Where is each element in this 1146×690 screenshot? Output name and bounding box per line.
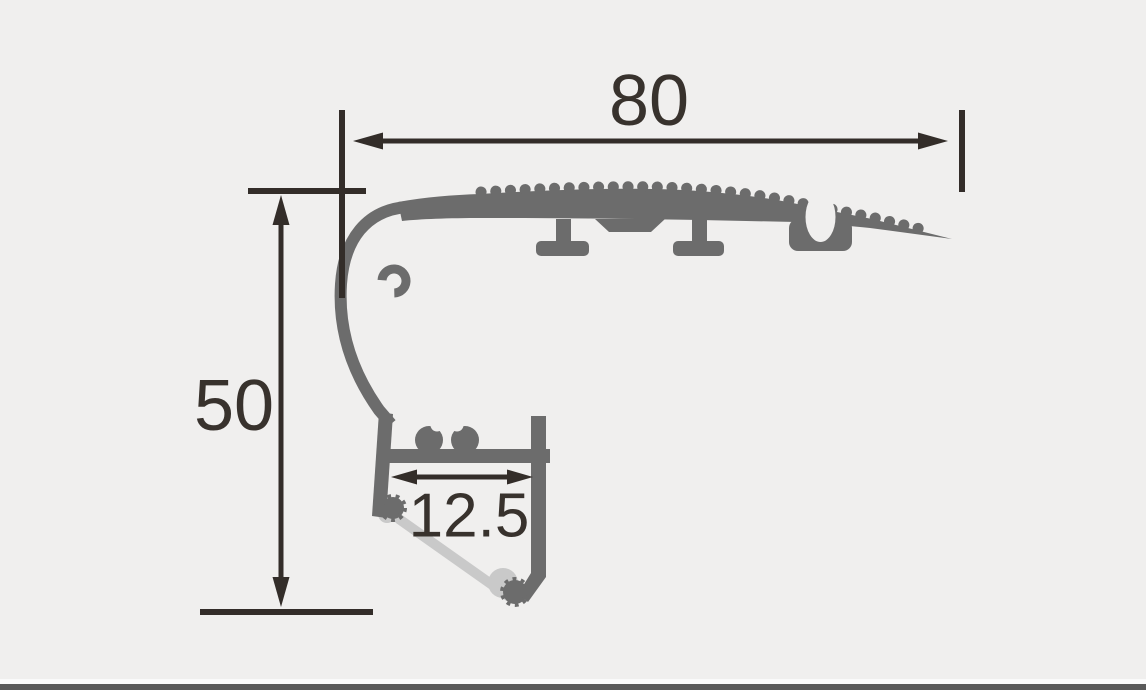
profile-nose-curve	[341, 207, 407, 424]
t-rib-left-foot	[536, 241, 589, 256]
screw-boss-bottom	[503, 580, 527, 604]
dimension-height-tick-bottom	[200, 609, 373, 615]
footer-bar	[0, 684, 1146, 690]
dimension-width-arrow-right	[918, 133, 948, 150]
t-rib-right-foot	[673, 241, 724, 256]
dimension-width-arrow-left	[353, 133, 383, 150]
dimension-height-arrow-down	[273, 577, 290, 607]
t-rib-left-stem	[556, 219, 571, 243]
dimension-height-tick-top	[248, 188, 366, 194]
dimension-height-label: 50	[194, 366, 274, 446]
dimension-width-extension-right	[959, 110, 965, 192]
dimension-height-arrow-up	[273, 195, 290, 225]
t-rib-right-stem	[692, 219, 707, 243]
dimension-width-label: 80	[609, 61, 689, 141]
t-rib-left	[536, 219, 589, 256]
pcb-clip-right-notch	[451, 419, 464, 432]
center-boss	[595, 219, 665, 232]
t-rib-right	[673, 219, 724, 256]
pcb-clip-left-notch	[431, 419, 444, 432]
endcap-channel-arch	[806, 192, 836, 242]
dimension-width: 80	[339, 61, 965, 298]
nose-screw-clip	[381, 268, 407, 294]
screw-boss-top	[382, 497, 404, 519]
footer-highlight-line	[0, 679, 1146, 684]
technical-drawing-canvas: 80 50 12.5	[0, 0, 1146, 690]
dimension-width-extension-left	[339, 110, 345, 298]
dimension-channel-label: 12.5	[409, 482, 530, 551]
dimension-channel-width: 12.5	[391, 470, 533, 551]
drawing-page: 80 50 12.5	[0, 0, 1146, 690]
